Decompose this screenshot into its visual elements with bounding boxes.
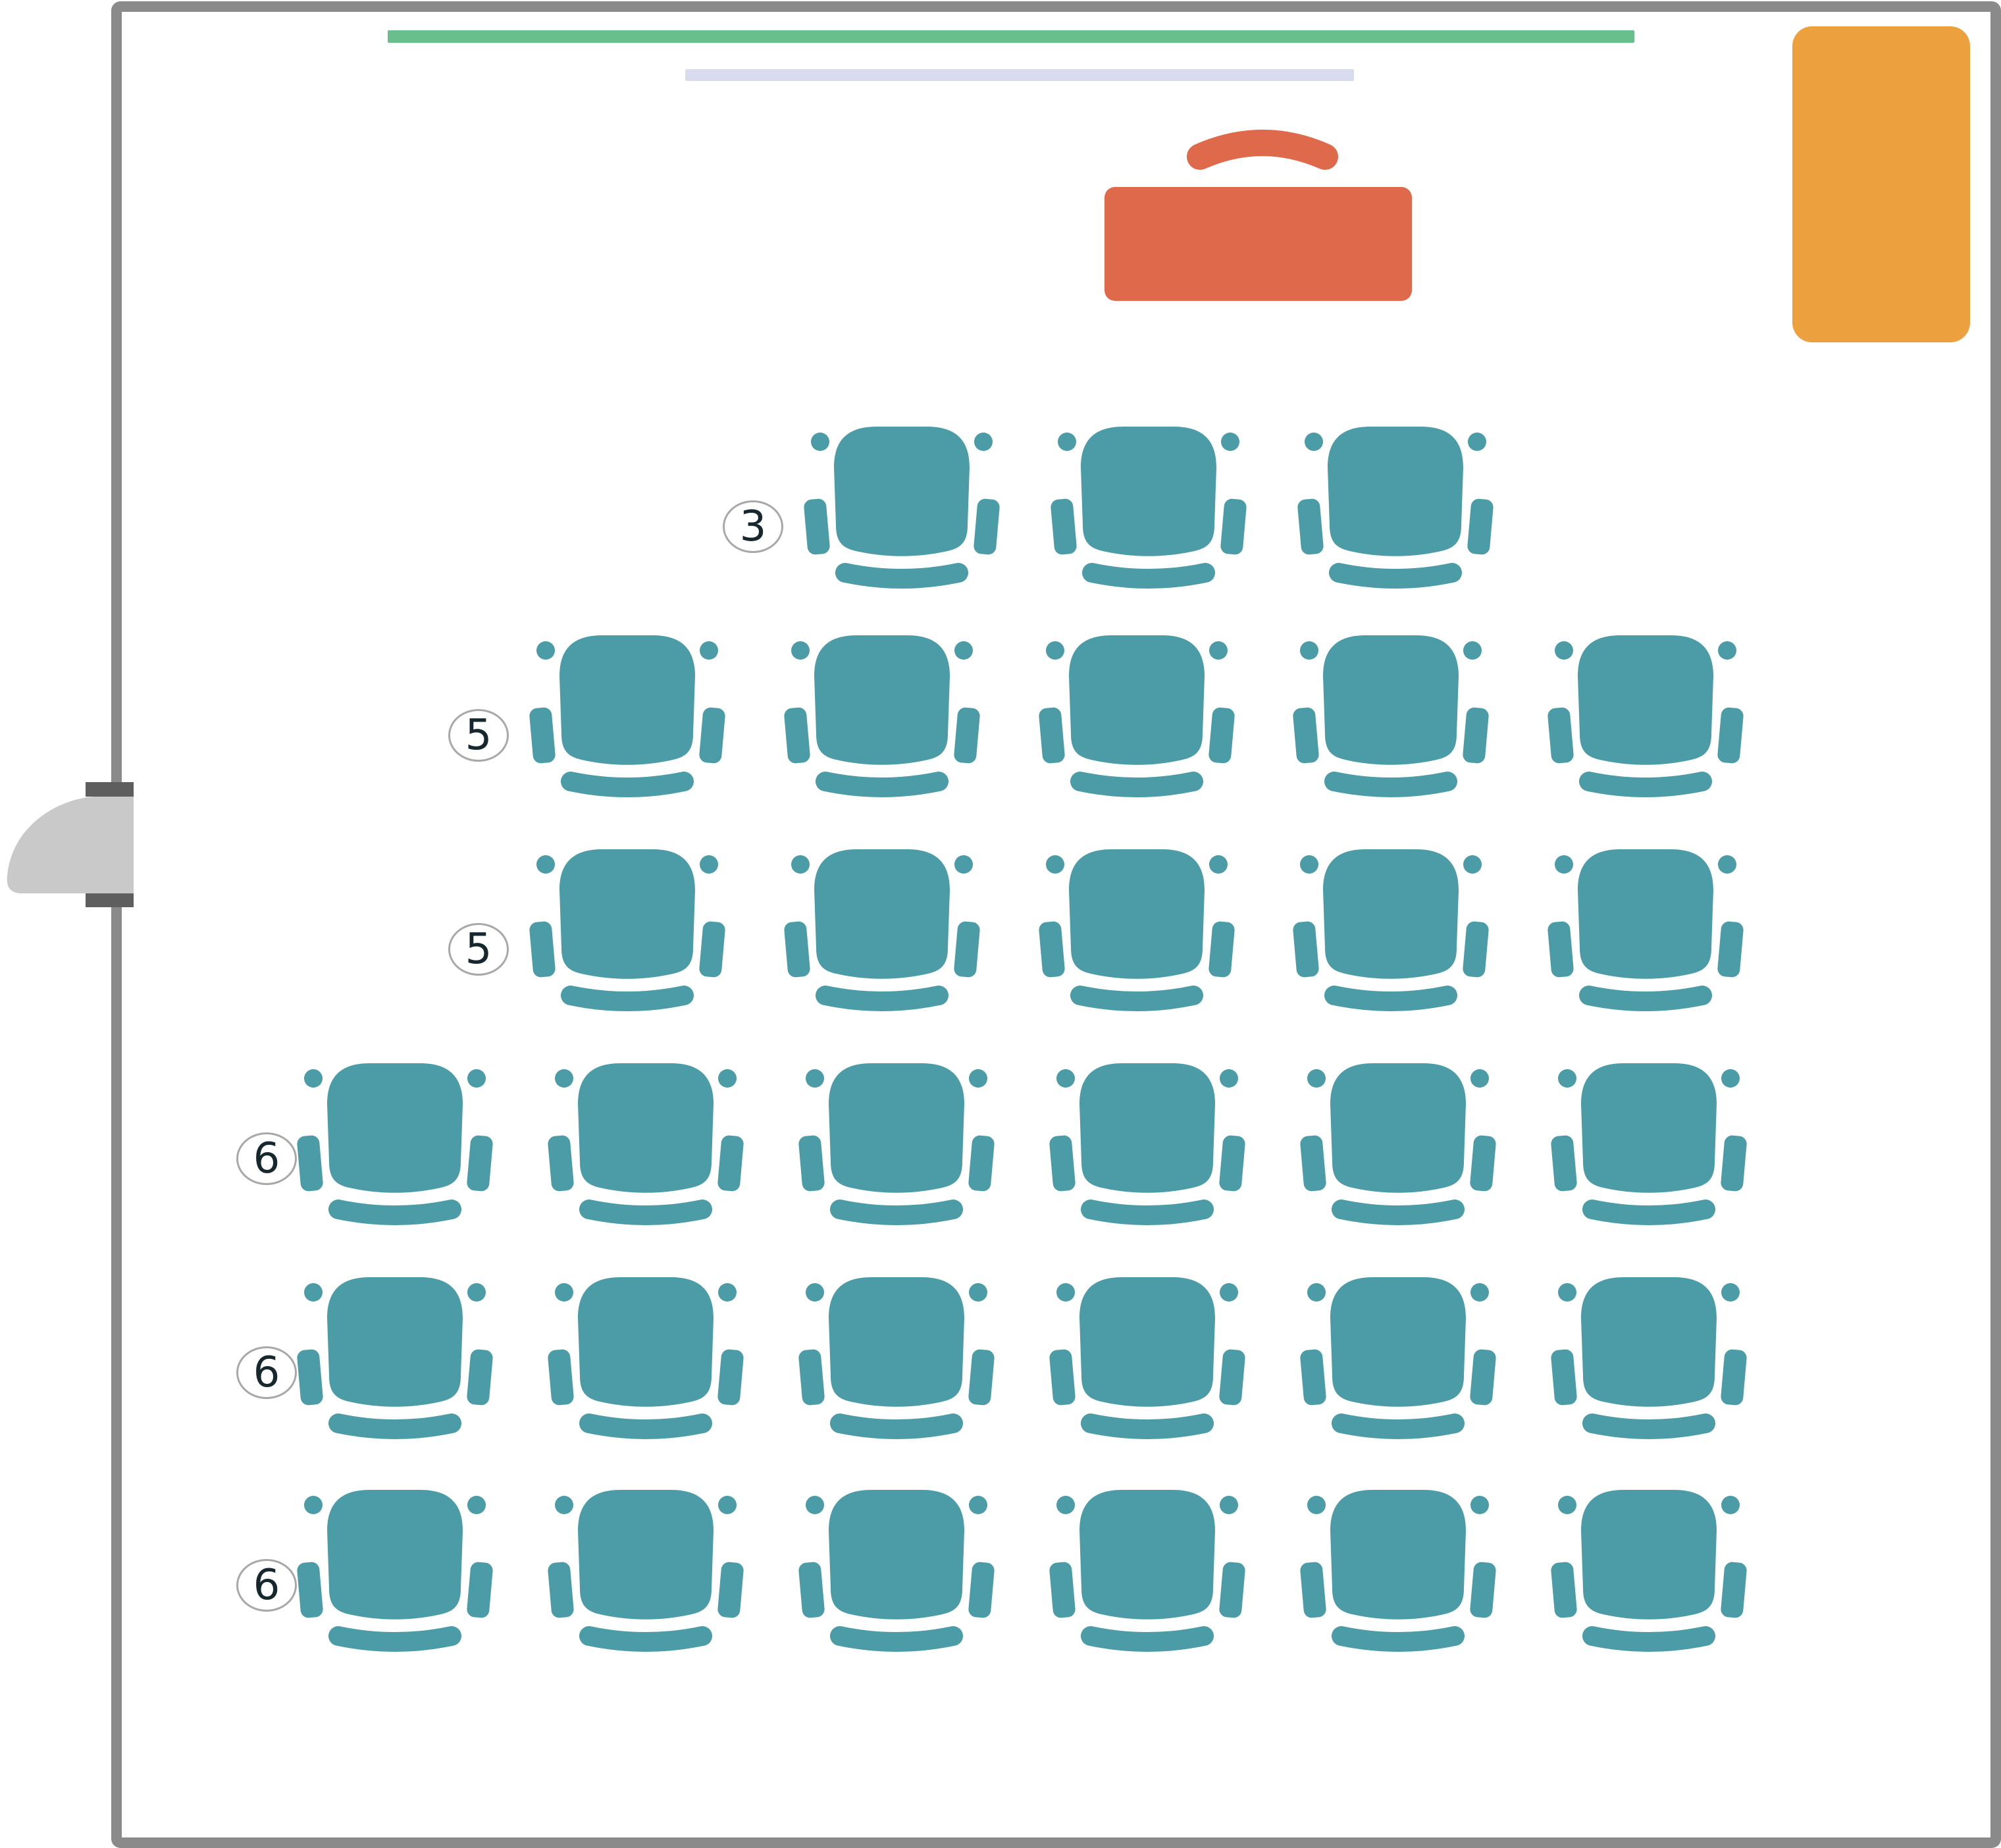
seat-row-count-badge: 5 <box>448 709 509 762</box>
chair-icon[interactable] <box>1292 635 1489 787</box>
chair-icon[interactable] <box>1547 849 1744 1001</box>
chair-icon[interactable] <box>1299 1490 1496 1642</box>
chair-icon[interactable] <box>547 1063 744 1215</box>
chair-icon[interactable] <box>1547 635 1744 787</box>
door-frame-post <box>86 782 134 797</box>
lectern-chair-icon[interactable] <box>1200 143 1325 157</box>
chair-icon[interactable] <box>1550 1490 1747 1642</box>
chair-icon[interactable] <box>783 849 980 1001</box>
chair-icon[interactable] <box>1292 849 1489 1001</box>
chair-icon[interactable] <box>547 1490 744 1642</box>
student-chairs <box>296 427 1747 1642</box>
chair-icon[interactable] <box>529 635 725 787</box>
chair-icon[interactable] <box>1050 427 1247 579</box>
chair-icon[interactable] <box>296 1063 493 1215</box>
seat-row-count-badge: 6 <box>236 1132 297 1185</box>
floor-plan: 355666 <box>0 0 2001 1848</box>
chair-icon[interactable] <box>1049 1277 1245 1429</box>
seat-row-count-badge: 6 <box>236 1559 297 1612</box>
chair-icon[interactable] <box>783 635 980 787</box>
chair-icon[interactable] <box>798 1277 995 1429</box>
chair-icon[interactable] <box>1049 1063 1245 1215</box>
seat-row-count-badge: 3 <box>723 500 783 553</box>
chair-icon[interactable] <box>798 1063 995 1215</box>
seat-row-count-badge: 6 <box>236 1346 297 1399</box>
chair-icon[interactable] <box>1550 1277 1747 1429</box>
chair-icon[interactable] <box>1550 1063 1747 1215</box>
chair-icon[interactable] <box>1297 427 1494 579</box>
shapes-layer <box>0 0 2001 1848</box>
seat-row-count-badge: 5 <box>448 923 509 976</box>
door[interactable] <box>7 782 134 907</box>
chair-icon[interactable] <box>1038 635 1235 787</box>
chair-icon[interactable] <box>547 1277 744 1429</box>
chair-icon[interactable] <box>803 427 1000 579</box>
door-leaf[interactable] <box>7 797 134 893</box>
chair-icon[interactable] <box>296 1277 493 1429</box>
chair-icon[interactable] <box>1299 1277 1496 1429</box>
chair-icon[interactable] <box>1049 1490 1245 1642</box>
door-frame-post <box>86 893 134 907</box>
chair-icon[interactable] <box>1299 1063 1496 1215</box>
chair-icon[interactable] <box>296 1490 493 1642</box>
chair-icon[interactable] <box>529 849 725 1001</box>
chair-icon[interactable] <box>1038 849 1235 1001</box>
chair-icon[interactable] <box>798 1490 995 1642</box>
